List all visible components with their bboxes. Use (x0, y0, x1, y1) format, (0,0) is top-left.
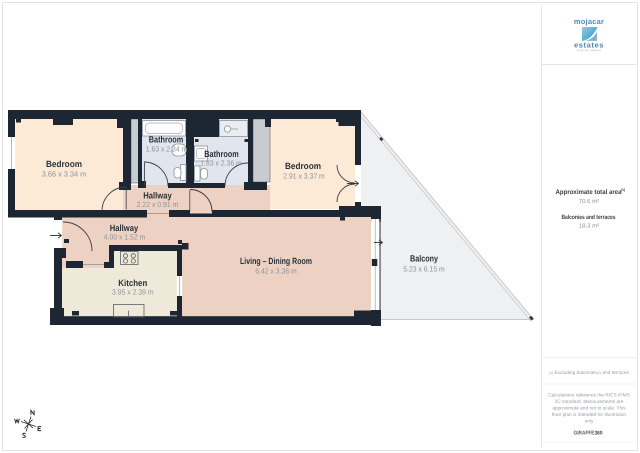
svg-text:3.66 x 3.34 m: 3.66 x 3.34 m (42, 170, 87, 179)
svg-text:1.83 x 2.36 m: 1.83 x 2.36 m (200, 159, 242, 168)
svg-text:2.91 x 3.37 m: 2.91 x 3.37 m (283, 172, 325, 181)
svg-text:Kitchen: Kitchen (118, 278, 147, 288)
svg-text:Approximate total area: Approximate total area (556, 189, 622, 196)
svg-text:mojacar estates: mojacar estates (577, 49, 602, 52)
svg-text:Balcony: Balcony (410, 254, 438, 264)
svg-text:(1) Excluding balconies(2) and: (1) Excluding balconies(2) and terraces (549, 370, 630, 376)
svg-text:Living – Dining Room: Living – Dining Room (240, 256, 312, 266)
svg-text:Bathroom: Bathroom (149, 135, 184, 145)
svg-text:Hallway: Hallway (110, 223, 139, 233)
svg-text:6.42 x 3.36 m: 6.42 x 3.36 m (255, 267, 297, 276)
svg-text:Balconies and terraces: Balconies and terraces (562, 214, 616, 221)
svg-text:18.3 m²: 18.3 m² (579, 223, 599, 230)
svg-text:approximate and not to scale.: approximate and not to scale. This (552, 406, 626, 412)
svg-text:Calculations reference the RIC: Calculations reference the RICS IPMS (548, 393, 630, 399)
svg-text:2.22 x 0.91 m: 2.22 x 0.91 m (137, 200, 179, 209)
svg-text:Bedroom: Bedroom (46, 159, 82, 169)
svg-text:mojacar: mojacar (574, 17, 604, 26)
svg-text:1.63 x 2.34 m: 1.63 x 2.34 m (146, 145, 188, 154)
svg-text:3C standard. Measurements are: 3C standard. Measurements are (555, 399, 624, 405)
svg-text:Bedroom: Bedroom (285, 161, 321, 171)
svg-text:4.00 x 1.52 m: 4.00 x 1.52 m (104, 233, 146, 242)
svg-text:3.95 x 2.39 m: 3.95 x 2.39 m (112, 288, 154, 297)
svg-text:70.6 m²: 70.6 m² (579, 198, 599, 205)
svg-text:only: only (585, 419, 594, 425)
svg-text:5.23 x 6.15 m: 5.23 x 6.15 m (403, 265, 445, 274)
svg-text:Bathroom: Bathroom (204, 149, 239, 159)
svg-text:floor plan is intended for ill: floor plan is intended for illustration (552, 412, 626, 418)
svg-text:Hallway: Hallway (143, 191, 172, 201)
svg-text:GIRAFFE360: GIRAFFE360 (574, 431, 603, 437)
